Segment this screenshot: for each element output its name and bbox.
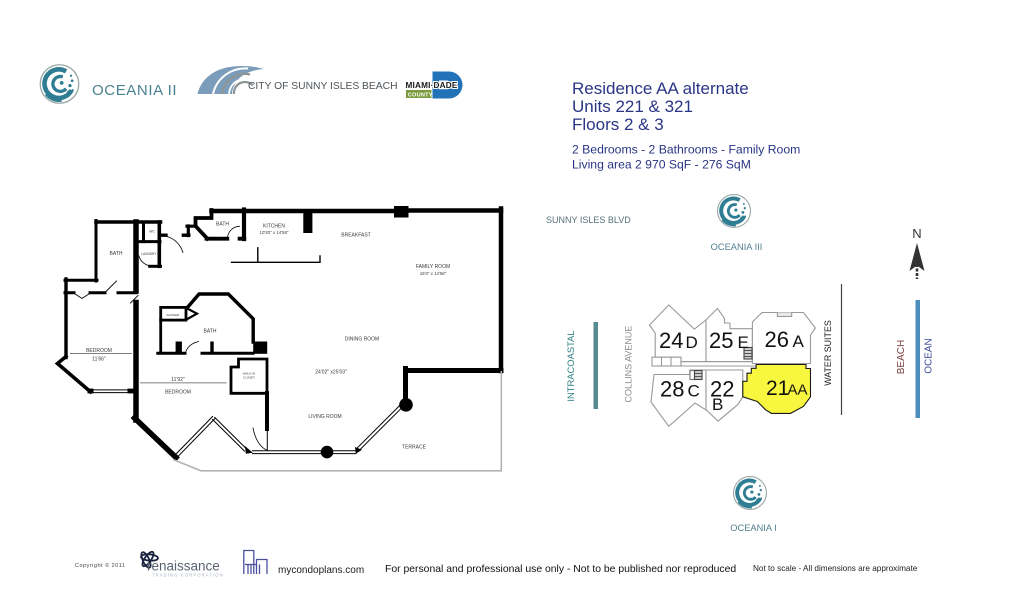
svg-text:WC: WC <box>149 230 155 234</box>
svg-text:LIVING ROOM: LIVING ROOM <box>308 414 341 420</box>
svg-text:OCEANIA II: OCEANIA II <box>92 82 177 99</box>
svg-text:INTRACOASTAL: INTRACOASTAL <box>565 330 576 401</box>
svg-text:E: E <box>738 333 749 352</box>
svg-text:AA: AA <box>788 382 808 399</box>
svg-text:28: 28 <box>660 377 684 402</box>
svg-text:21: 21 <box>766 377 789 400</box>
svg-text:BREAKFAST: BREAKFAST <box>341 233 370 239</box>
svg-text:BATH: BATH <box>110 251 123 257</box>
svg-text:SUNNY ISLES BLVD: SUNNY ISLES BLVD <box>546 215 631 225</box>
svg-text:10'20" x 14'58": 10'20" x 14'58" <box>260 230 289 235</box>
svg-text:B: B <box>712 395 723 414</box>
svg-text:renaissance: renaissance <box>147 559 220 574</box>
svg-text:Floors 2 & 3: Floors 2 & 3 <box>572 115 664 134</box>
svg-text:CITY OF SUNNY ISLES BEACH: CITY OF SUNNY ISLES BEACH <box>248 81 398 92</box>
svg-text:MIAMI·DADE: MIAMI·DADE <box>406 81 458 90</box>
svg-text:DINING ROOM: DINING ROOM <box>345 337 379 343</box>
svg-text:CLOSET: CLOSET <box>243 376 255 380</box>
svg-text:BEACH: BEACH <box>896 340 907 374</box>
svg-text:BEDROOM: BEDROOM <box>165 390 191 396</box>
svg-text:Units 221 & 321: Units 221 & 321 <box>572 97 693 116</box>
svg-text:LAUNDRY: LAUNDRY <box>141 252 157 256</box>
svg-text:24: 24 <box>659 328 683 353</box>
svg-text:16'0" x 14'58": 16'0" x 14'58" <box>420 271 447 276</box>
svg-text:mycondoplans.com: mycondoplans.com <box>278 565 364 576</box>
svg-text:D: D <box>686 333 698 352</box>
svg-text:OCEANIA I: OCEANIA I <box>730 523 777 533</box>
svg-text:25: 25 <box>709 328 733 353</box>
svg-text:Copyright © 2011: Copyright © 2011 <box>75 562 125 569</box>
svg-text:TRADING CORPORATION: TRADING CORPORATION <box>152 573 224 578</box>
svg-text:OCEANIA III: OCEANIA III <box>711 242 763 252</box>
svg-text:Living area 2 970 SqF - 276 S: Living area 2 970 SqF - 276 SqM <box>572 158 751 172</box>
svg-text:2 Bedrooms - 2 Bathrooms - Fam: 2 Bedrooms - 2 Bathrooms - Family Room <box>572 143 800 157</box>
svg-text:26: 26 <box>765 327 789 352</box>
svg-text:C: C <box>688 382 700 401</box>
svg-text:BATH: BATH <box>204 329 217 335</box>
svg-text:BATH: BATH <box>216 222 229 228</box>
svg-text:11'92": 11'92" <box>171 377 185 383</box>
svg-text:COUNTY: COUNTY <box>408 92 433 98</box>
svg-text:N: N <box>912 226 921 241</box>
svg-text:24'02" x25'03": 24'02" x25'03" <box>315 370 347 376</box>
svg-text:OCEAN: OCEAN <box>924 338 935 374</box>
svg-text:KITCHEN: KITCHEN <box>263 224 285 230</box>
svg-text:TERRACE: TERRACE <box>402 445 427 451</box>
svg-text:Not to scale - All dimensions: Not to scale - All dimensions are approx… <box>753 564 918 573</box>
svg-text:WATER SUITES: WATER SUITES <box>823 320 833 386</box>
svg-text:For personal and professional: For personal and professional use only -… <box>385 564 736 575</box>
svg-text:FAMILY ROOM: FAMILY ROOM <box>416 264 450 270</box>
svg-text:11'66": 11'66" <box>92 357 106 363</box>
svg-text:SHOWER: SHOWER <box>167 313 180 317</box>
svg-text:Residence AA alternate: Residence AA alternate <box>572 79 749 98</box>
svg-text:COLLINS AVENUE: COLLINS AVENUE <box>624 326 634 403</box>
svg-text:A: A <box>793 332 805 351</box>
